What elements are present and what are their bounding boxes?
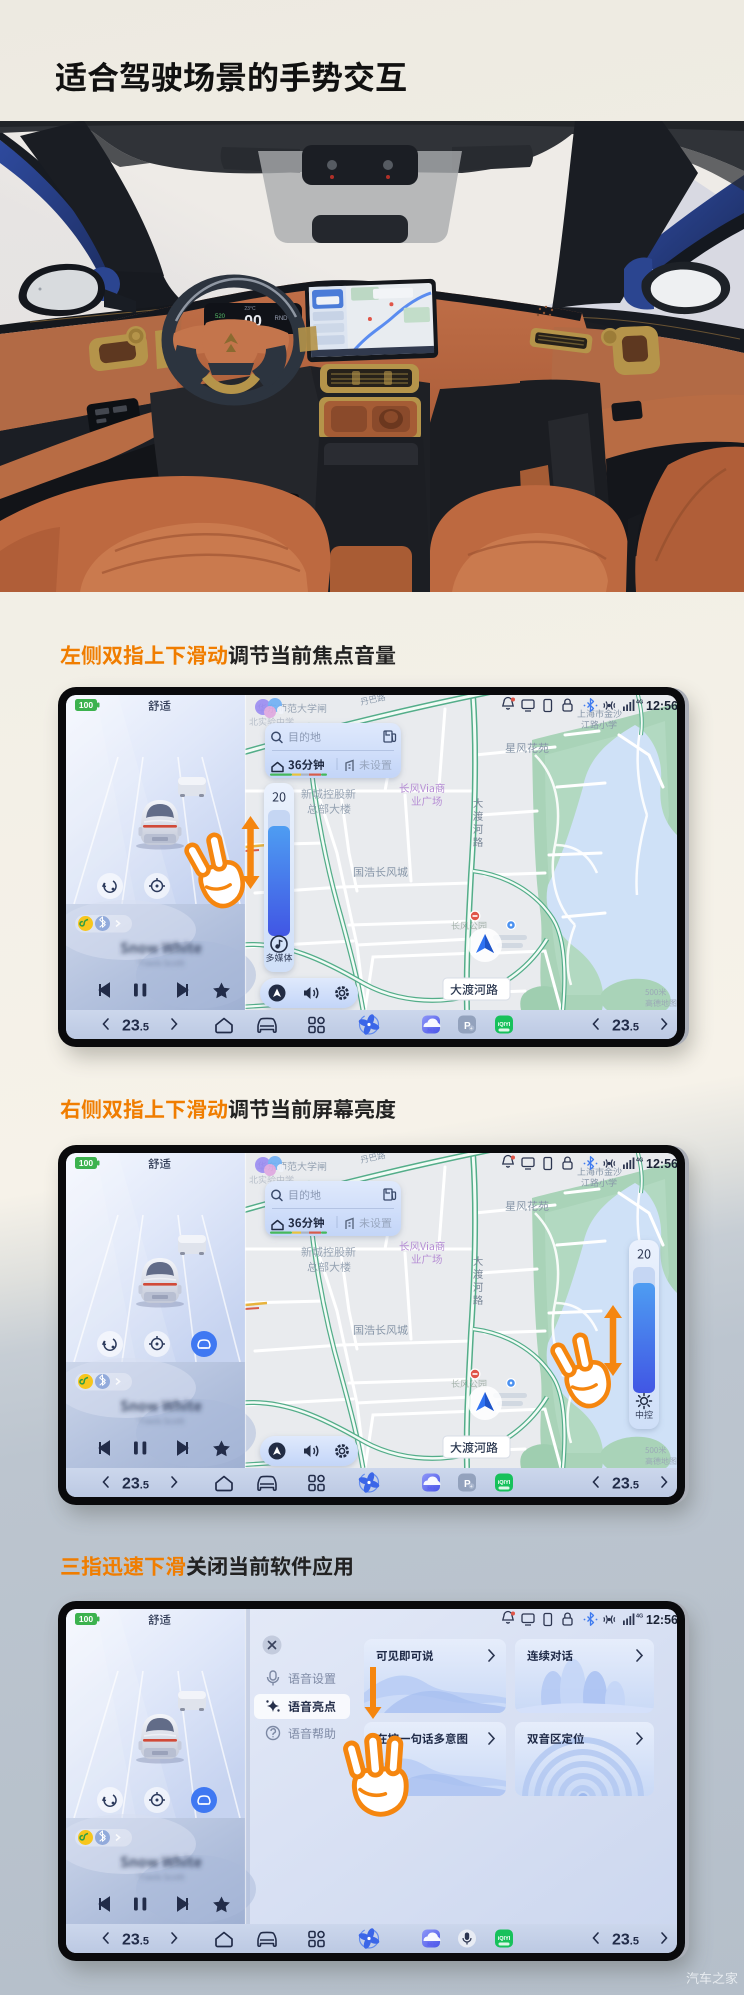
svg-text:360: 360 <box>427 1028 435 1034</box>
svg-text:23°C: 23°C <box>244 306 256 312</box>
svg-text:100: 100 <box>79 1614 93 1624</box>
svg-text:12:56: 12:56 <box>646 1157 677 1171</box>
svg-text:iQIYI: iQIYI <box>498 1936 511 1942</box>
svg-text:12:56: 12:56 <box>646 699 677 713</box>
svg-text:12:56: 12:56 <box>646 1613 677 1627</box>
svg-text:360: 360 <box>427 1486 435 1492</box>
svg-text:+: + <box>470 1026 473 1032</box>
svg-text:520: 520 <box>215 314 226 320</box>
svg-text:4G: 4G <box>636 1158 643 1164</box>
svg-text:4G: 4G <box>636 700 643 706</box>
svg-text:+: + <box>470 1484 473 1490</box>
svg-text:100: 100 <box>79 700 93 710</box>
svg-text:4G: 4G <box>636 1614 643 1620</box>
svg-text:100: 100 <box>79 1158 93 1168</box>
svg-text:iQIYI: iQIYI <box>498 1480 511 1486</box>
svg-text:iQIYI: iQIYI <box>498 1022 511 1028</box>
svg-text:360: 360 <box>427 1942 435 1948</box>
svg-text:RND: RND <box>275 316 289 322</box>
